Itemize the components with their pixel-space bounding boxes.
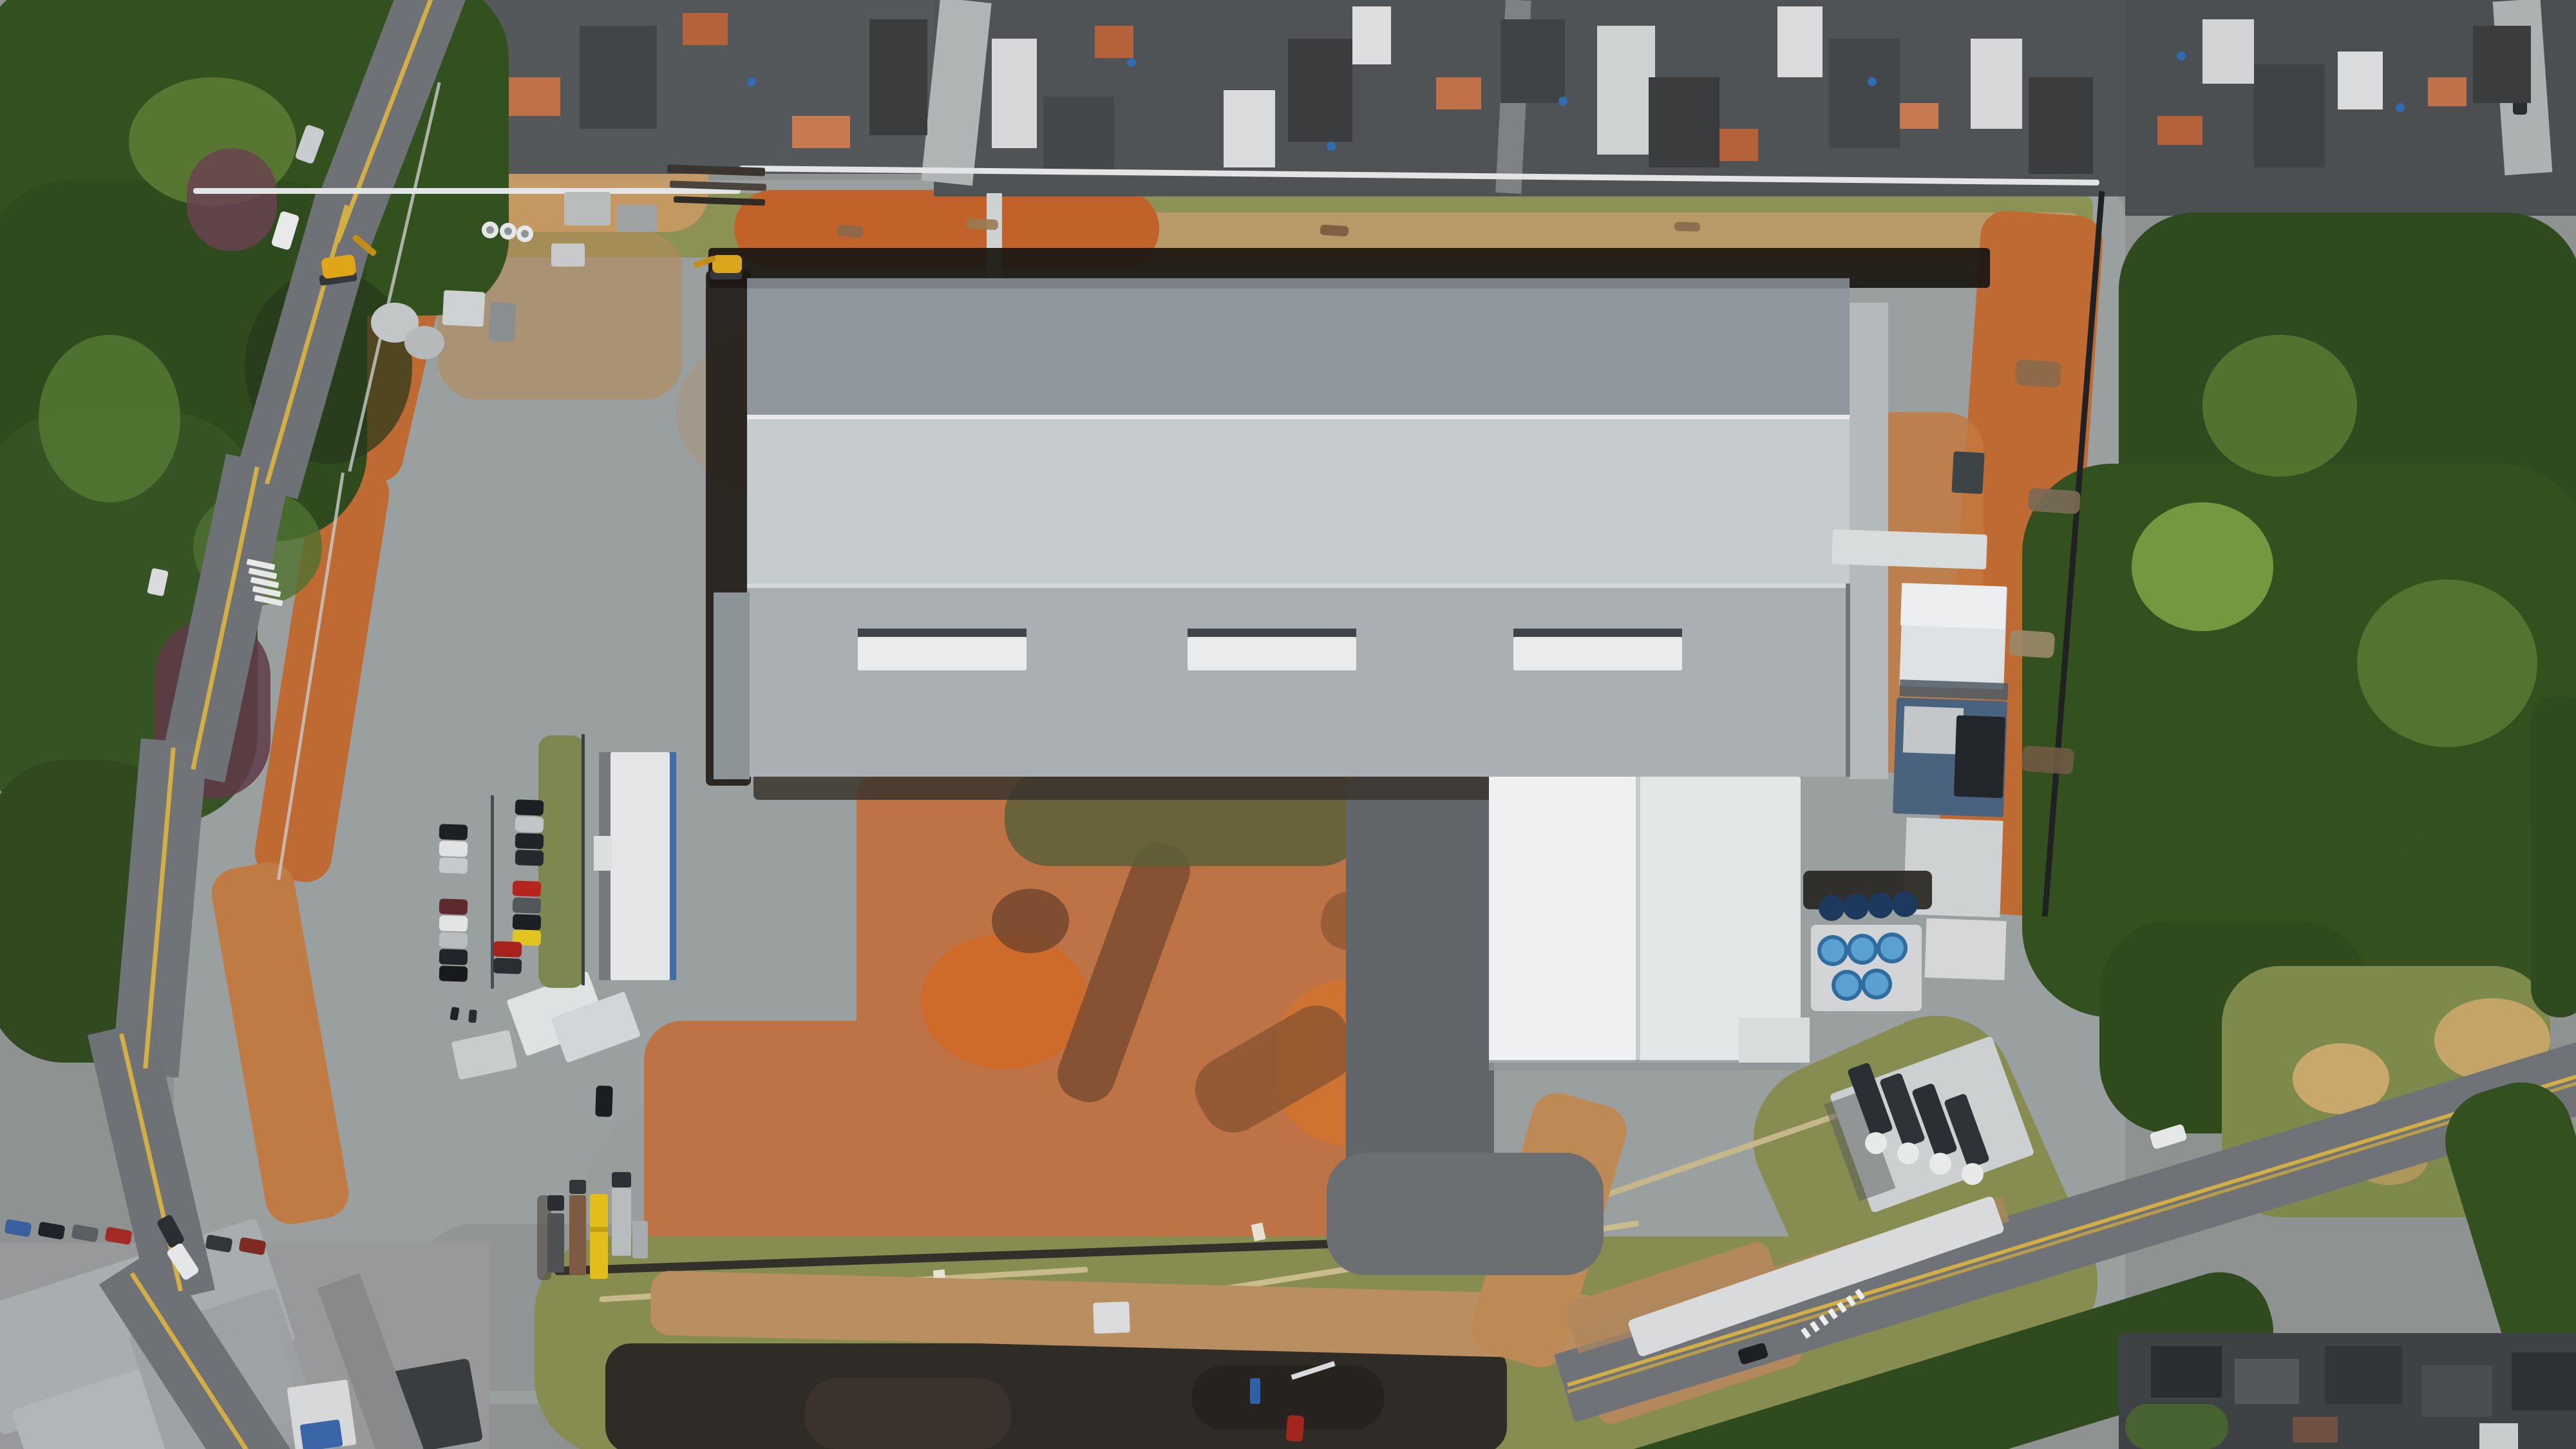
satellite-dish <box>1558 97 1567 106</box>
debris-pile <box>2028 488 2081 514</box>
warehouse-ridge-line <box>747 583 1850 588</box>
annex-facet-light <box>1489 777 1637 1063</box>
white-trailer <box>1093 1302 1130 1334</box>
debris-pile <box>966 218 999 231</box>
parking-grass-strip <box>538 735 585 988</box>
parked-car <box>439 824 468 840</box>
annex-gable-facet <box>1900 583 2006 629</box>
satellite-dish <box>747 77 756 86</box>
house-roof-white <box>1777 6 1823 77</box>
forest-maroon-tree <box>187 148 277 251</box>
parked-car <box>71 1224 99 1243</box>
truck-cab <box>547 1195 564 1211</box>
house-roof-dark <box>2473 26 2531 103</box>
house-roof-dark <box>2235 1359 2299 1404</box>
house-roof-white <box>1971 39 2022 129</box>
truck-container-yellow <box>590 1194 608 1279</box>
site-shed <box>442 290 486 327</box>
truck-bed-small <box>632 1221 648 1258</box>
storage-tank-navy <box>1868 893 1893 918</box>
debris-pile <box>837 224 863 238</box>
house-roof-dark <box>869 19 927 135</box>
house-roof-dark <box>1043 97 1114 174</box>
house-roof-orange <box>1900 103 1938 129</box>
annex-white-strip-northeast <box>1832 529 1987 569</box>
car <box>595 1086 613 1117</box>
house-roof-orange <box>2157 116 2202 145</box>
house-roof-white <box>2479 1423 2518 1449</box>
site-container <box>1951 451 1984 494</box>
warehouse-shadow-south <box>753 773 1501 800</box>
roof-vent-white <box>1513 637 1682 670</box>
truck-flatbed <box>612 1188 631 1256</box>
debris-pile <box>2009 630 2056 659</box>
house-roof-white <box>2338 52 2383 109</box>
forest-bright-canopy <box>2202 335 2357 477</box>
satellite-dish <box>1327 142 1336 151</box>
warehouse-roof-mid-band <box>747 415 1861 583</box>
car-red-gate <box>1285 1415 1304 1442</box>
house-roof-white <box>992 39 1037 148</box>
parked-car <box>439 857 468 874</box>
parked-car <box>513 880 542 897</box>
truck-cab <box>612 1172 631 1188</box>
house-roof-dark <box>1829 39 1900 148</box>
parked-car <box>439 932 468 949</box>
gate-sign-blue <box>1250 1378 1260 1404</box>
driveway-dark-flare <box>1327 1153 1604 1275</box>
forest-edge-east <box>2531 696 2576 1018</box>
parked-car <box>439 840 468 857</box>
yard-green <box>2125 1404 2228 1449</box>
house-roof-dark <box>2254 64 2325 167</box>
storage-tank-navy <box>1892 891 1918 917</box>
parked-car <box>4 1219 32 1238</box>
roof-vent-white <box>1188 637 1356 670</box>
parked-car <box>37 1222 65 1240</box>
storage-tank-navy <box>1843 894 1869 920</box>
parked-car <box>515 816 544 833</box>
water-tank-blue <box>1851 938 1874 961</box>
parked-car <box>439 949 468 965</box>
parked-car <box>493 941 522 958</box>
aerial-photo-canvas <box>0 0 2576 1449</box>
parked-car <box>515 799 544 816</box>
house-roof-dark <box>2421 1365 2492 1417</box>
water-tank-blue <box>1865 972 1888 996</box>
gravel-cone-pile <box>404 326 444 359</box>
chiller-cylinder-white <box>1897 1142 1919 1164</box>
parked-car <box>104 1227 132 1245</box>
house-roof-orange <box>1436 77 1481 109</box>
house-roof-dark <box>2512 1352 2576 1410</box>
pallet-stack-dark <box>1954 715 2005 799</box>
house-roof-orange <box>2293 1417 2338 1443</box>
water-tank-blue <box>1821 939 1844 962</box>
excavator-body-yellow <box>712 255 742 273</box>
office-building <box>611 752 670 980</box>
chiller-cylinder-white <box>1865 1132 1887 1154</box>
house-roof-dark <box>1288 39 1352 142</box>
parked-car <box>515 849 544 866</box>
house-roof-dark <box>580 26 657 129</box>
parked-car <box>515 833 544 849</box>
material-pallet <box>617 205 657 232</box>
roof-vent-shadow <box>858 629 1027 637</box>
office-blue-edge <box>670 752 676 980</box>
chiller-cylinder-white <box>1929 1153 1951 1175</box>
house-roof-orange <box>792 116 850 148</box>
debris-pile <box>1320 224 1349 236</box>
forest-lime-tree <box>2132 502 2273 631</box>
material-pallet <box>551 243 585 267</box>
concrete-apron <box>1924 918 2006 980</box>
roof-vent-shadow <box>1513 629 1682 637</box>
dirt-mound-bright <box>921 934 1088 1069</box>
debris-pile <box>1674 222 1700 231</box>
forest-bright-canopy <box>2357 580 2537 747</box>
water-tank-blue <box>1835 974 1859 997</box>
truck-flatbed-rusty <box>569 1195 586 1275</box>
chiller-cylinder-white <box>1962 1163 1984 1185</box>
house-roof-dark <box>1501 19 1565 103</box>
small-building-blue <box>299 1419 343 1449</box>
water-tank-blue <box>1880 936 1904 960</box>
truck-trailer <box>547 1213 564 1273</box>
warehouse-roof-south-band <box>747 583 1850 777</box>
burnt-field-patch <box>805 1378 1011 1449</box>
house-roof-dark <box>2325 1346 2402 1404</box>
parking-fence <box>582 734 585 985</box>
house-roof-white <box>1224 90 1275 167</box>
satellite-dish <box>1127 58 1136 67</box>
warehouse-roof-eave <box>747 278 1850 289</box>
parked-car <box>493 958 522 974</box>
parked-car <box>513 914 542 931</box>
house-roof-dark <box>2029 77 2093 174</box>
motorcycle <box>468 1010 477 1023</box>
parked-car <box>439 915 468 932</box>
concrete-pipe-hole <box>486 226 494 234</box>
satellite-dish <box>1868 77 1877 86</box>
forest-bright-canopy <box>39 335 180 502</box>
debris-pile <box>2015 359 2062 388</box>
annex-step <box>1739 1018 1810 1063</box>
site-container <box>488 302 516 342</box>
satellite-dish <box>2396 103 2405 112</box>
house-roof-dark <box>1649 77 1719 167</box>
house-roof-orange <box>509 77 560 116</box>
concrete-pipe-hole <box>521 230 529 238</box>
debris-pile <box>2022 745 2075 774</box>
parked-car <box>439 965 468 982</box>
office-wing <box>594 836 612 871</box>
annex-ridge <box>1636 777 1640 1063</box>
parked-car <box>513 897 542 914</box>
excavation-dark-patch <box>992 889 1069 953</box>
warehouse-ridge-line <box>747 415 1861 419</box>
house-roof-dark <box>2151 1346 2222 1397</box>
house-roof-white <box>1352 6 1391 64</box>
parked-car <box>439 898 468 915</box>
warehouse-roof-north-band <box>747 278 1850 415</box>
warehouse-leanto-west <box>714 592 750 779</box>
house-roof-orange <box>2428 77 2467 106</box>
satellite-dish <box>2177 52 2186 61</box>
equipment-canopy <box>1903 706 1964 754</box>
material-pallet <box>564 192 611 225</box>
container-stripe <box>590 1227 608 1232</box>
roof-vent-shadow <box>1188 629 1356 637</box>
roof-vent-white <box>858 637 1027 670</box>
warehouse-roof-seam <box>1846 583 1850 777</box>
boundary-wall-north <box>193 188 741 194</box>
truck-cab <box>569 1180 586 1194</box>
storage-tank-navy <box>1819 895 1844 921</box>
house-roof-white <box>1597 26 1655 155</box>
house-roof-orange <box>1095 26 1133 58</box>
house-roof-orange <box>683 13 728 45</box>
house-roof-white <box>2202 19 2254 84</box>
concrete-pipe-hole <box>504 227 512 235</box>
